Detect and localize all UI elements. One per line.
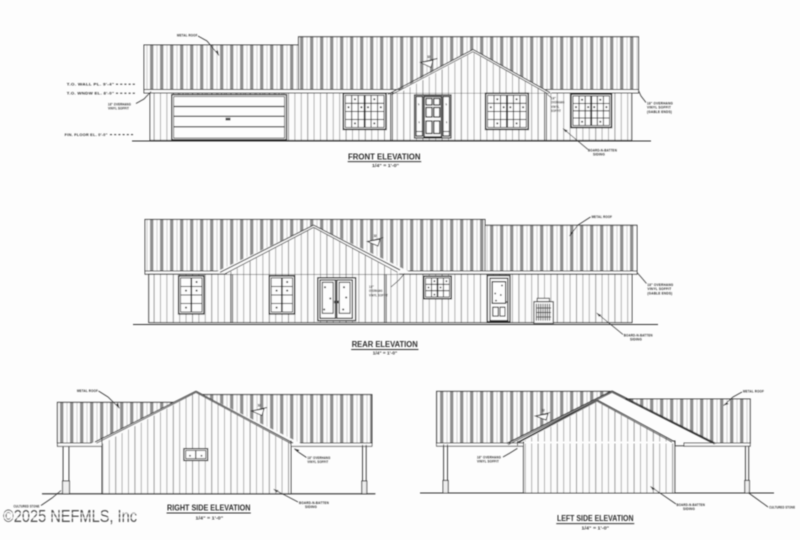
svg-text:12: 12 (427, 55, 431, 59)
svg-text:VINYL SOFFIT: VINYL SOFFIT (369, 293, 388, 297)
svg-text:METAL ROOF: METAL ROOF (177, 34, 198, 38)
svg-text:12: 12 (542, 409, 546, 413)
svg-text:1/4" = 1'-0": 1/4" = 1'-0" (372, 163, 399, 168)
svg-text:12: 12 (258, 404, 262, 408)
svg-text:(GABLE ENDS): (GABLE ENDS) (647, 291, 672, 295)
svg-text:1/4" = 1'-0": 1/4" = 1'-0" (373, 350, 397, 355)
svg-text:RIGHT SIDE ELEVATION: RIGHT SIDE ELEVATION (167, 504, 251, 513)
svg-text:METAL ROOF: METAL ROOF (77, 389, 98, 393)
svg-text:LEFT SIDE ELEVATION: LEFT SIDE ELEVATION (557, 514, 634, 523)
svg-text:12: 12 (374, 234, 378, 238)
svg-text:1/4" = 1'-0": 1/4" = 1'-0" (196, 515, 224, 520)
svg-text:CULTURED STONE: CULTURED STONE (769, 506, 795, 510)
svg-text:SIDING: SIDING (593, 153, 605, 157)
svg-text:SIDING: SIDING (683, 507, 695, 511)
svg-text:VINYL SOFFIT: VINYL SOFFIT (477, 460, 499, 464)
svg-text:1/4" = 1'-0": 1/4" = 1'-0" (582, 525, 610, 530)
svg-text:FRONT ELEVATION: FRONT ELEVATION (348, 152, 421, 161)
svg-text:METAL ROOF: METAL ROOF (592, 215, 613, 219)
svg-text:VINYL SOFFIT: VINYL SOFFIT (307, 460, 328, 464)
svg-text:SIDING: SIDING (305, 505, 317, 509)
svg-text:VINYL SOFFIT: VINYL SOFFIT (108, 107, 129, 111)
svg-text:T.O. WNDW EL. 8'-0": T.O. WNDW EL. 8'-0" (67, 92, 115, 96)
svg-text:T.O. WALL PL. 9'-4": T.O. WALL PL. 9'-4" (67, 83, 115, 87)
svg-text:FIN. FLOOR EL. 0'-0": FIN. FLOOR EL. 0'-0" (65, 133, 108, 137)
svg-text:SOFFIT: SOFFIT (551, 109, 561, 113)
svg-text:SIDING: SIDING (630, 338, 642, 342)
svg-text:METAL ROOF: METAL ROOF (743, 390, 764, 394)
svg-text:©2025 NEFMLS, Inc: ©2025 NEFMLS, Inc (3, 506, 137, 526)
svg-text:(GABLE ENDS): (GABLE ENDS) (647, 110, 672, 114)
svg-text:REAR ELEVATION: REAR ELEVATION (352, 340, 418, 349)
